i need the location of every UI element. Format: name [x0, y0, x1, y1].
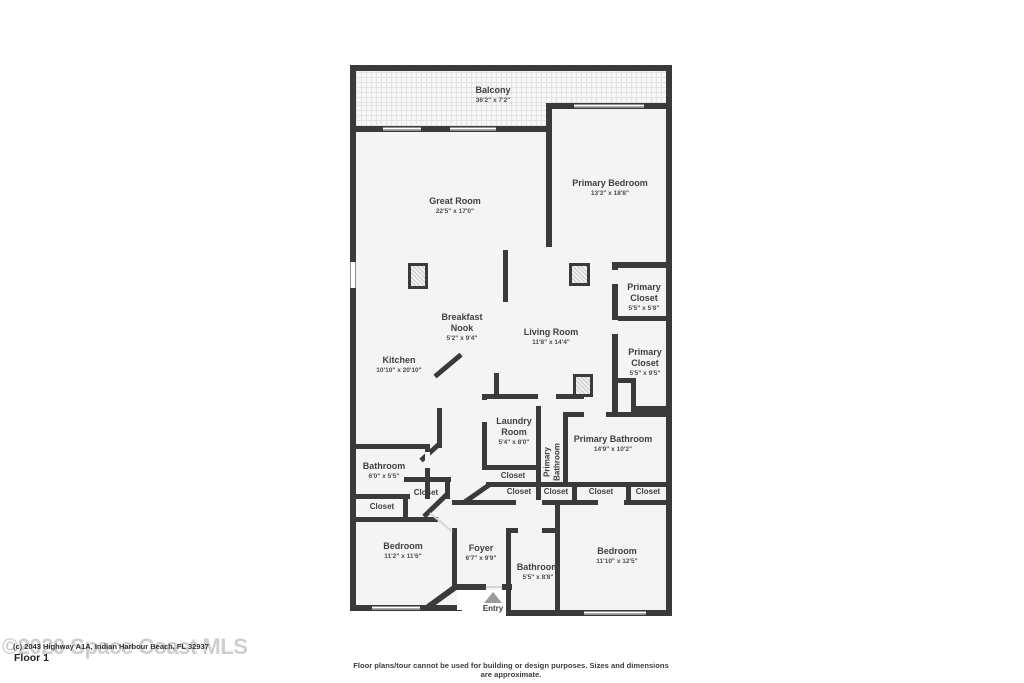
room-name: Closet [401, 488, 451, 498]
room-name: Balcony [433, 85, 553, 96]
room-name: Primary Closet [622, 347, 668, 369]
room-label-bedroom-right: Bedroom11'10" x 12'5" [562, 546, 672, 566]
fixture-hatch [573, 374, 593, 397]
floorplan-page: Balcony36'2" x 7'2" Great Room22'5" x 17… [0, 0, 1024, 683]
room-name: Bathroom [344, 461, 424, 472]
wall [482, 394, 538, 399]
window [372, 606, 420, 610]
closet-label: Closet [483, 471, 543, 481]
room-dims: 5'5" x 5'8" [621, 304, 667, 312]
door-opening [584, 412, 606, 417]
room-dims: 5'4" x 8'0" [490, 438, 538, 446]
room-label-balcony: Balcony36'2" x 7'2" [433, 85, 553, 105]
disclaimer-text: Floor plans/tour cannot be used for buil… [350, 661, 672, 679]
room-label-bedroom-left: Bedroom11'2" x 11'6" [353, 541, 453, 561]
room-dims: 6'0" x 5'5" [344, 473, 424, 481]
room-dims: 11'2" x 11'6" [353, 553, 453, 561]
room-name: Closet [534, 487, 578, 497]
room-name: Kitchen [344, 355, 454, 366]
wall [546, 103, 552, 249]
room-name: Closet [483, 471, 543, 481]
wall [563, 412, 672, 417]
floor-title: Floor 1 [14, 652, 49, 664]
property-address: (c) 2043 Highway A1A, Indian Harbour Bea… [13, 642, 209, 651]
window [350, 262, 356, 288]
room-name: Bathroom [508, 562, 568, 573]
wall [482, 465, 540, 470]
room-name: Closet [626, 487, 670, 497]
room-name: Great Room [395, 196, 515, 207]
room-label-breakfast-nook: Breakfast Nook5'2" x 9'4" [433, 312, 491, 342]
door-opening [518, 528, 542, 533]
room-name: Laundry Room [490, 416, 538, 438]
room-dims: 22'5" x 17'0" [395, 208, 515, 216]
room-dims: 13'3" x 18'8" [550, 190, 670, 198]
fixture-hatch [569, 263, 590, 286]
wall [503, 250, 508, 302]
closet-label: Closet [626, 487, 670, 497]
closet-label: Closet [401, 488, 451, 498]
room-dims: 36'2" x 7'2" [433, 97, 553, 105]
door-opening [612, 270, 618, 284]
wall [437, 408, 442, 448]
window [383, 127, 421, 131]
room-name: Primary Bedroom [550, 178, 670, 189]
room-dims: 11'8" x 14'4" [501, 339, 601, 347]
room-name: Entry [473, 604, 513, 614]
room-label-living-room: Living Room11'8" x 14'4" [501, 327, 601, 347]
door-opening [612, 320, 618, 334]
window [450, 127, 496, 131]
room-label-primary-closet-upper: Primary Closet5'5" x 5'8" [621, 282, 667, 312]
room-label-great-room: Great Room22'5" x 17'0" [395, 196, 515, 216]
room-label-bathroom-lower: Bathroom5'5" x 8'8" [508, 562, 568, 582]
wall [612, 262, 672, 268]
closet-label: Closet [352, 502, 412, 512]
room-dims: 5'5" x 8'8" [508, 574, 568, 582]
room-dims: 5'2" x 9'4" [433, 334, 491, 342]
wall [612, 262, 618, 414]
room-dims: 11'10" x 12'5" [562, 558, 672, 566]
room-label-kitchen: Kitchen10'10" x 20'10" [344, 355, 454, 375]
room-label-laundry-room: Laundry Room5'4" x 8'0" [490, 416, 538, 446]
room-name: Bedroom [562, 546, 672, 557]
door-opening [516, 500, 542, 505]
wall [350, 65, 672, 71]
room-name: Bedroom [353, 541, 453, 552]
room-label-foyer: Foyer6'7" x 9'9" [441, 543, 521, 563]
room-dims: 10'10" x 20'10" [344, 367, 454, 375]
closet-label: Closet [576, 487, 626, 497]
closet-label: Closet [534, 487, 578, 497]
fixture-hatch [408, 263, 428, 289]
room-label-primary-closet-lower: Primary Closet5'5" x 9'5" [622, 347, 668, 377]
wall [350, 444, 430, 449]
room-dims: 14'9" x 10'2" [558, 446, 668, 454]
room-name: Closet [352, 502, 412, 512]
wall [666, 65, 672, 616]
door-opening [546, 247, 552, 269]
window [584, 611, 646, 615]
entry-arrow-icon [484, 592, 502, 603]
room-name: Closet [576, 487, 626, 497]
room-label-primary-bedroom: Primary Bedroom13'3" x 18'8" [550, 178, 670, 198]
entry-door-line [486, 586, 502, 588]
room-name: Primary Bathroom [558, 434, 668, 445]
wall [616, 316, 672, 321]
room-name: Living Room [501, 327, 601, 338]
door-opening [598, 500, 624, 505]
wall [452, 500, 672, 505]
room-label-primary-bathroom: Primary Bathroom14'9" x 10'2" [558, 434, 668, 454]
door-opening [425, 452, 430, 468]
door-opening [482, 400, 487, 422]
entry-label: Entry [473, 604, 513, 614]
room-label-bathroom-upper: Bathroom6'0" x 5'5" [344, 461, 424, 481]
wall [555, 500, 560, 533]
room-name: Breakfast Nook [433, 312, 491, 334]
room-dims: 5'5" x 9'5" [622, 369, 668, 377]
room-name: Foyer [441, 543, 521, 554]
room-name: Primary Closet [621, 282, 667, 304]
balcony-deck-pattern [356, 103, 546, 126]
window [574, 104, 644, 108]
wall [350, 65, 356, 611]
